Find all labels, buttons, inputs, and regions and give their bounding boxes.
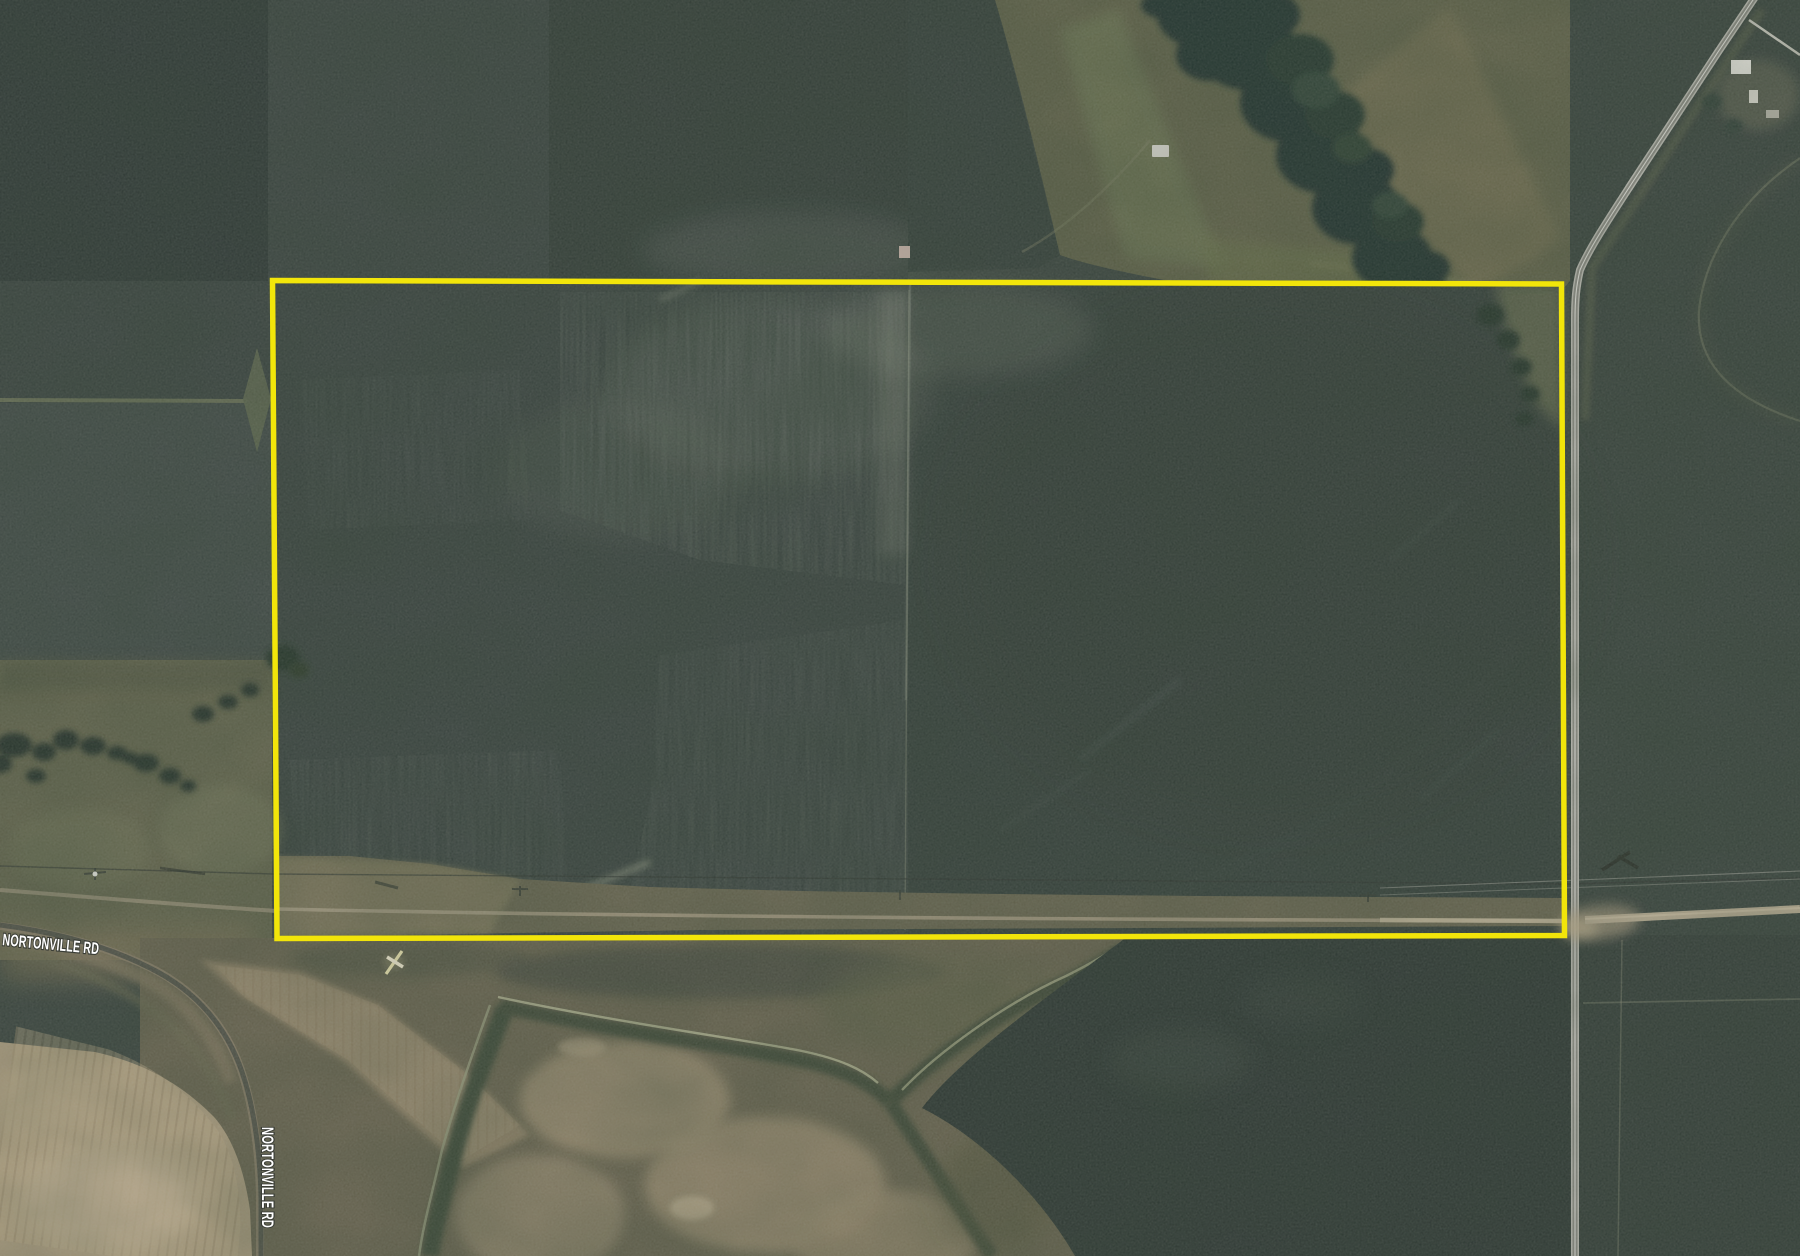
svg-text:NORTONVILLE RD: NORTONVILLE RD <box>258 1127 276 1228</box>
